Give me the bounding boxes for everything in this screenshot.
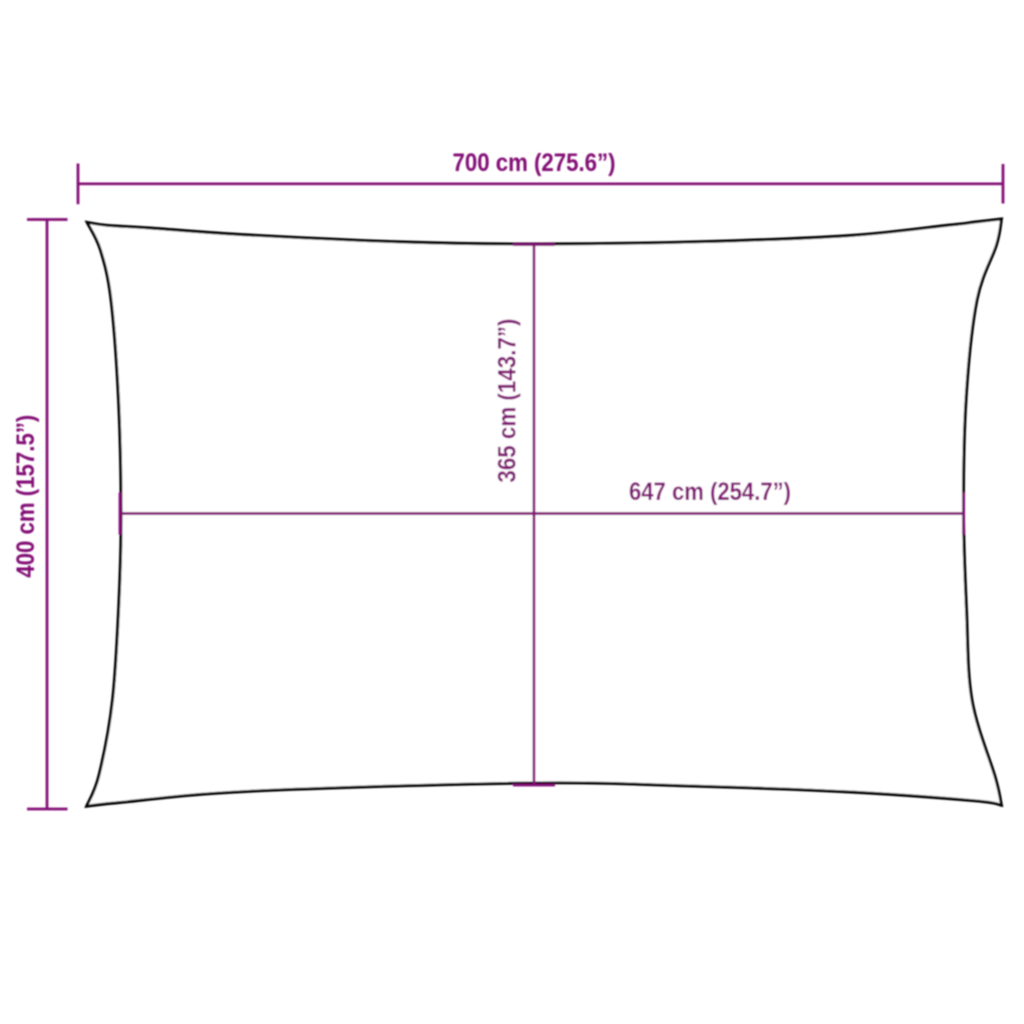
svg-text:700 cm (275.6”): 700 cm (275.6”) <box>453 149 616 177</box>
svg-text:647 cm (254.7”): 647 cm (254.7”) <box>629 478 791 506</box>
svg-text:400 cm (157.5”): 400 cm (157.5”) <box>12 415 40 578</box>
svg-text:365 cm (143.7”): 365 cm (143.7”) <box>494 319 522 483</box>
